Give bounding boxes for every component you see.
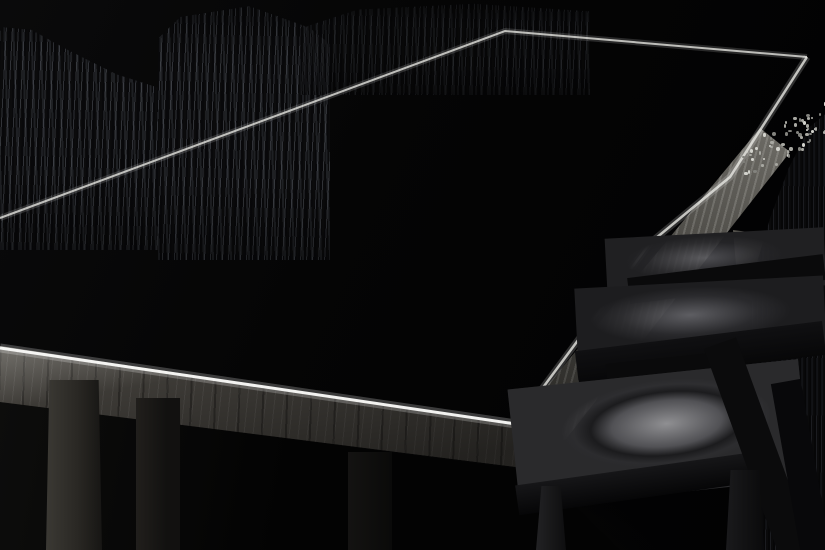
- speckle-dot: [763, 158, 765, 160]
- speckle-dot: [789, 147, 792, 151]
- map-block: [0, 306, 33, 347]
- speckle-dot: [775, 163, 778, 166]
- speckle-dot: [788, 154, 790, 158]
- speckle-dot: [772, 132, 776, 136]
- map-block: [60, 318, 105, 350]
- speckle-dot: [815, 127, 817, 131]
- speckle-dot: [761, 164, 764, 167]
- speckle-dot: [802, 143, 805, 147]
- scene-stage: [0, 0, 825, 550]
- speckle-dot: [748, 170, 750, 174]
- speckle-dot: [785, 132, 788, 136]
- speckle-dot: [793, 117, 796, 120]
- speckle-dot: [806, 114, 810, 117]
- traffic-circle: [147, 229, 185, 266]
- map-block: [31, 247, 82, 294]
- speckle-dot: [763, 133, 765, 136]
- speckle-dot: [751, 158, 754, 161]
- speckle-dot: [807, 128, 809, 130]
- speckle-dot: [809, 133, 812, 135]
- speckle-dot: [811, 117, 813, 119]
- speckle-dot: [794, 123, 797, 126]
- map-avenue-cross: [268, 62, 400, 446]
- speckle-dot: [744, 172, 747, 175]
- speckle-dot: [753, 170, 757, 172]
- speckle-dot: [809, 139, 811, 143]
- speckle-dot: [750, 149, 753, 153]
- map-block: [0, 267, 20, 297]
- speckle-dot: [759, 151, 761, 155]
- map-block: [149, 289, 217, 329]
- speckle-dot: [749, 154, 752, 156]
- speckle-dot: [770, 141, 773, 144]
- speckle-dot: [807, 117, 811, 120]
- speckle-dot: [801, 148, 804, 151]
- speckle-dot: [770, 146, 773, 148]
- speckle-dot: [806, 124, 809, 128]
- traffic-circle: [233, 340, 277, 370]
- table-leg-front-left-2: [136, 398, 180, 550]
- map-block: [223, 121, 320, 189]
- speckle-dot: [819, 113, 821, 116]
- table-leg-front-left: [46, 380, 102, 550]
- speckle-dot: [788, 130, 792, 132]
- speckle-dot: [776, 147, 779, 151]
- speckle-dot: [742, 156, 745, 159]
- speckle-dot: [755, 147, 758, 150]
- chair-leg-near-right: [726, 470, 764, 550]
- map-block: [310, 188, 413, 256]
- speckle-dot: [800, 136, 803, 139]
- speckle-dot: [781, 146, 784, 148]
- map-block: [181, 206, 249, 272]
- map-block: [318, 266, 460, 327]
- rod-tips-speckles: [726, 100, 825, 195]
- speckle-dot: [785, 121, 787, 123]
- speckle-dot: [743, 161, 745, 163]
- traffic-circle: [21, 227, 41, 252]
- speckle-dot: [770, 137, 772, 140]
- map-block: [90, 239, 188, 305]
- speckle-dot: [784, 124, 786, 128]
- speckle-dot: [746, 150, 748, 153]
- map-block: [400, 148, 551, 225]
- table-leg-middle: [348, 452, 392, 550]
